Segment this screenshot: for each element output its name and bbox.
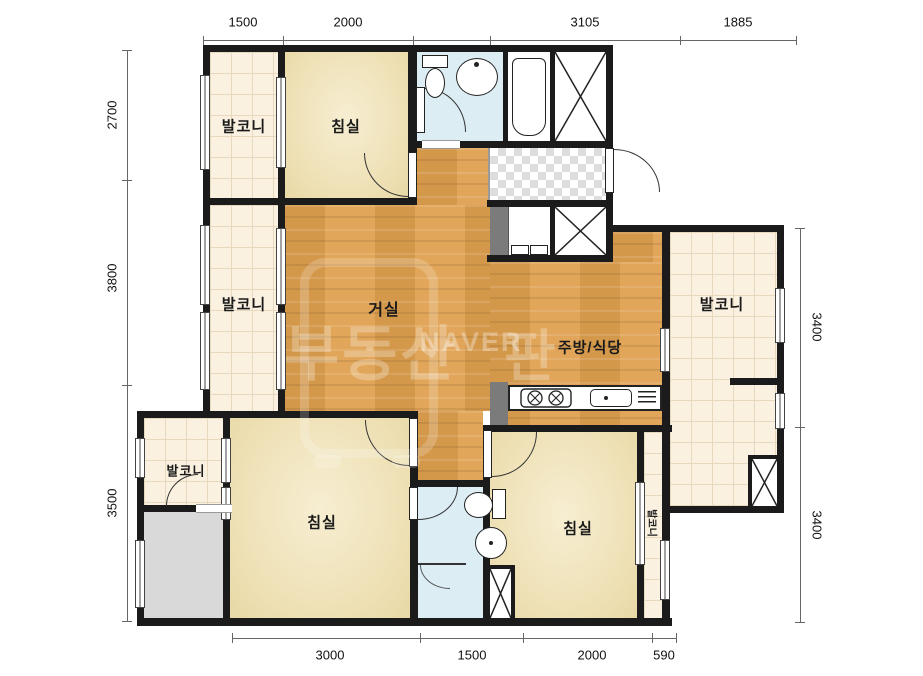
- dim-label-bottom-4: 590: [653, 648, 675, 663]
- utility-room-floor: [144, 512, 223, 618]
- dim-tick: [122, 385, 132, 386]
- door-swing-entrance: [614, 149, 660, 192]
- wall: [550, 207, 555, 255]
- dim-tick: [796, 36, 797, 45]
- dimension-line-top: [203, 40, 797, 41]
- toilet-bowl-bottom: [464, 492, 493, 518]
- door-leaf-bedroom-top: [408, 152, 417, 198]
- window: [775, 393, 785, 429]
- duct-top: [490, 207, 508, 255]
- window: [775, 288, 785, 343]
- entry-step-line: [488, 148, 490, 200]
- window: [276, 77, 286, 168]
- window: [200, 75, 210, 170]
- dim-label-left-1: 2700: [105, 101, 120, 130]
- wall: [137, 411, 418, 418]
- shoe-shelf-box: [511, 245, 529, 255]
- kitchen-sink-icon: [590, 389, 632, 407]
- room-label-balcony-mid-left: 발코니: [222, 294, 266, 315]
- dim-label-right-2: 3400: [810, 511, 825, 540]
- wall: [606, 45, 613, 148]
- wall: [610, 225, 784, 232]
- window: [635, 482, 645, 565]
- dim-tick: [490, 36, 491, 45]
- wall: [483, 425, 672, 432]
- window: [135, 540, 145, 608]
- dim-label-bottom-3: 2000: [578, 648, 607, 663]
- wall: [777, 225, 784, 513]
- wall: [410, 520, 418, 618]
- wall: [487, 255, 613, 262]
- dimension-line-bottom: [232, 638, 677, 639]
- room-label-balcony-strip: 발코니: [646, 509, 661, 537]
- dim-label-top-2: 2000: [334, 15, 363, 30]
- dim-tick: [795, 427, 805, 428]
- corridor-bottom-floor: [418, 411, 483, 480]
- dim-label-top-1: 1500: [229, 15, 258, 30]
- window: [221, 438, 231, 483]
- wall: [503, 52, 508, 141]
- dim-tick: [122, 180, 132, 181]
- bathroom-top-threshold: [422, 140, 460, 149]
- room-label-bedroom-top: 침실: [331, 116, 361, 137]
- door-leaf-bedroom-bottom-left: [409, 418, 418, 467]
- corridor-top-floor: [417, 148, 490, 205]
- window: [200, 225, 210, 305]
- dim-label-right-1: 3400: [810, 313, 825, 342]
- dim-tick: [523, 633, 524, 643]
- door-leaf-bedroom-bottom-right: [483, 430, 492, 478]
- shower-divider: [418, 563, 466, 565]
- wall: [662, 506, 784, 513]
- wall: [487, 200, 613, 207]
- kitchen-floor-upper: [613, 232, 662, 262]
- window: [200, 312, 210, 390]
- room-label-bedroom-bottom-left: 침실: [307, 512, 337, 533]
- room-label-living: 거실: [368, 296, 399, 320]
- stove-icon: [520, 388, 572, 408]
- dim-label-bottom-2: 1500: [458, 648, 487, 663]
- window: [660, 328, 670, 372]
- room-label-balcony-right: 발코니: [700, 294, 744, 315]
- balcony-utility-threshold: [196, 504, 232, 513]
- window: [660, 540, 670, 600]
- door-leaf-bathroom-bottom: [409, 487, 418, 520]
- dim-label-left-3: 3500: [105, 489, 120, 518]
- dim-tick: [795, 622, 805, 623]
- sink-bottom-faucet: [489, 541, 493, 545]
- wall: [606, 193, 613, 262]
- door-leaf-entrance: [605, 148, 614, 193]
- dim-tick: [283, 36, 284, 45]
- dim-label-top-4: 1885: [724, 15, 753, 30]
- wall-stub: [730, 378, 777, 385]
- dim-tick: [680, 36, 681, 45]
- dim-label-bottom-1: 3000: [316, 648, 345, 663]
- dim-tick: [122, 50, 132, 51]
- dim-tick: [122, 621, 132, 622]
- dim-tick: [203, 36, 204, 45]
- duct-kitchen: [490, 382, 508, 428]
- kitchen-sink-drain: [604, 396, 608, 400]
- room-label-balcony-bottom-left: 발코니: [167, 461, 206, 480]
- shaft-x-bottom: [490, 565, 515, 618]
- dim-tick: [676, 633, 677, 643]
- shaft-x-balcony-right: [748, 455, 777, 506]
- dim-tick: [420, 633, 421, 643]
- dimension-line-left: [127, 50, 128, 622]
- door-leaf-bathroom-top: [416, 87, 425, 133]
- bathtub: [512, 58, 546, 136]
- wall: [203, 198, 417, 205]
- entry-floor: [490, 148, 606, 200]
- wall: [410, 467, 418, 487]
- window: [135, 438, 145, 478]
- dim-label-left-2: 3800: [105, 264, 120, 293]
- toilet-tank-bottom: [492, 489, 506, 519]
- dim-tick: [232, 633, 233, 643]
- floor-plan: 부동산 NAVER 판 발코니 침실 발코니 거실 주방/식당 발코니 발코니 …: [0, 0, 923, 676]
- window: [276, 228, 286, 305]
- room-label-kitchen-dining: 주방/식당: [558, 337, 622, 358]
- toilet-tank-top: [422, 55, 448, 68]
- wall: [137, 618, 672, 626]
- shoe-shelf-box: [530, 245, 548, 255]
- window: [276, 312, 286, 390]
- dim-tick: [413, 36, 414, 45]
- shaft-x-top: [555, 52, 606, 141]
- wall: [137, 505, 197, 512]
- dim-tick: [795, 228, 805, 229]
- wall: [410, 480, 490, 487]
- shaft-x-mid: [555, 207, 606, 255]
- toilet-bowl-top: [425, 68, 445, 98]
- room-label-balcony-top-left: 발코니: [222, 116, 266, 137]
- dish-rack-icon: [638, 391, 656, 404]
- dim-label-top-3: 3105: [571, 15, 600, 30]
- room-label-bedroom-bottom-right: 침실: [563, 518, 593, 539]
- dimension-line-right: [800, 228, 801, 623]
- wall: [550, 45, 555, 148]
- sink-top-faucet: [474, 62, 479, 67]
- dim-tick: [652, 633, 653, 643]
